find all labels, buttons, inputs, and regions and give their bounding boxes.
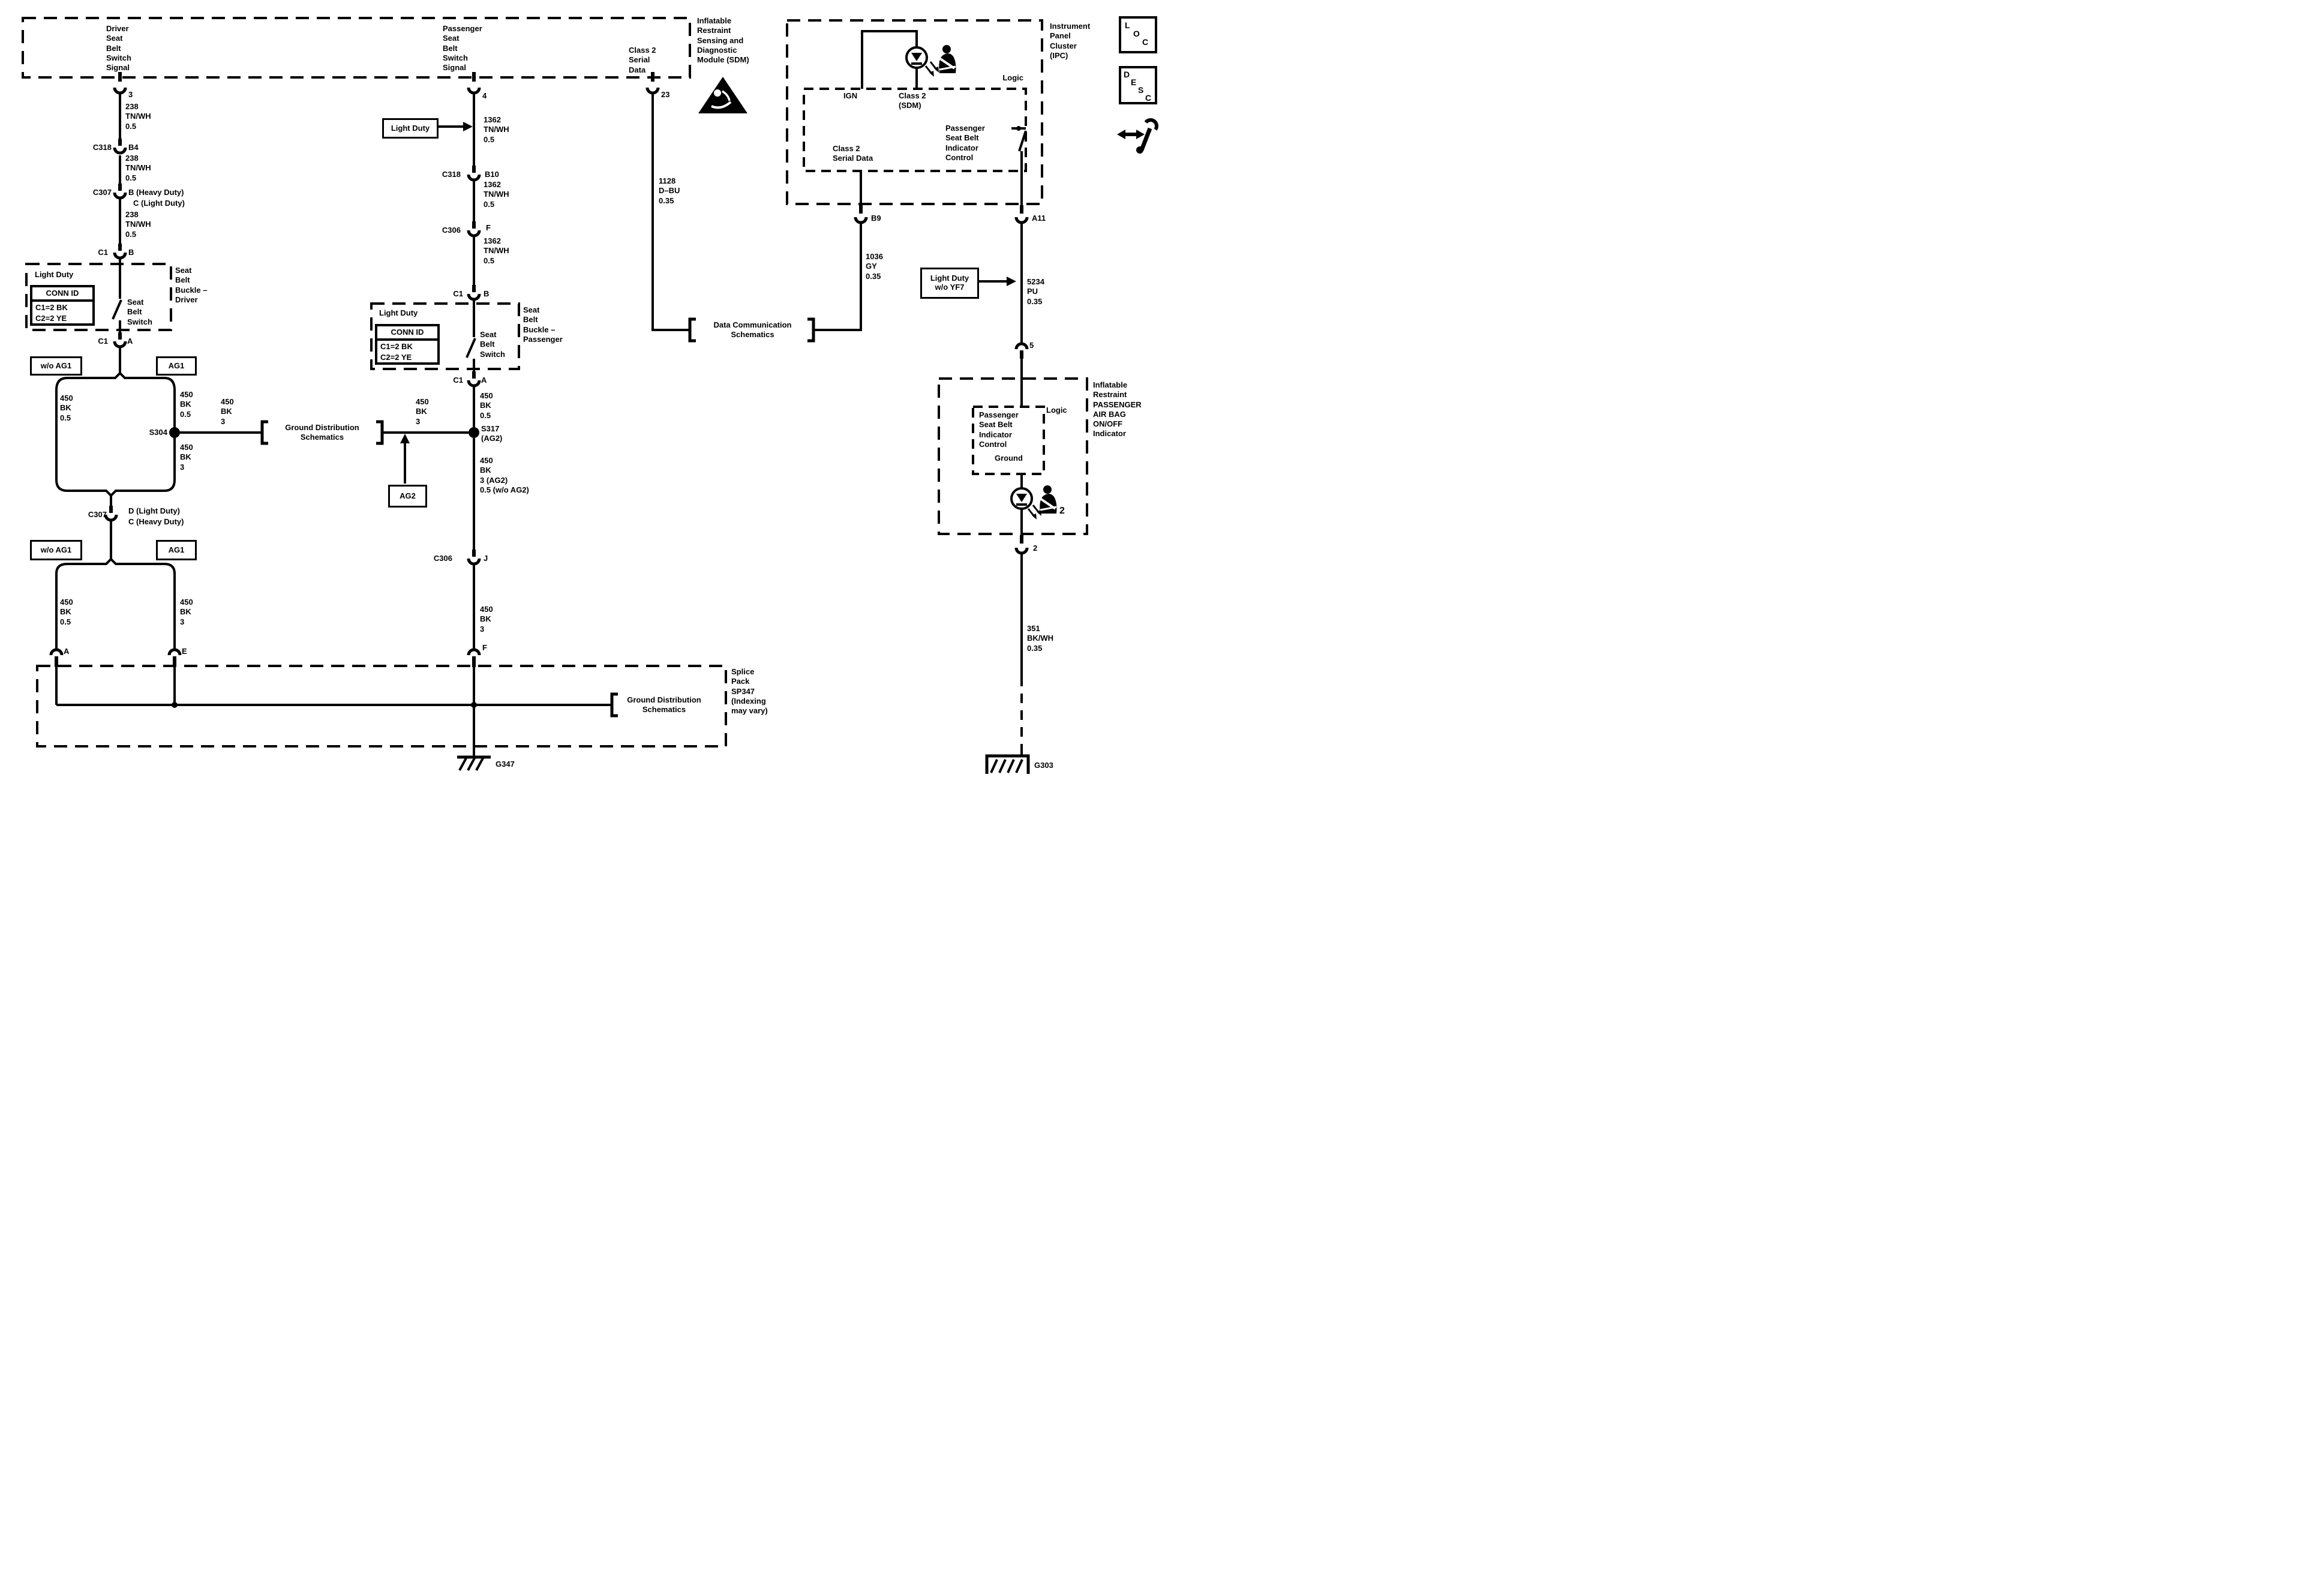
connector-stubs (55, 72, 1023, 667)
connector-c318-pin: B4 (128, 143, 139, 152)
ground-icon-g303 (987, 756, 1028, 774)
wire-label-1128: 1128 D–BU 0.35 (659, 176, 680, 206)
ground-distribution-ref: Ground Distribution Schematics (619, 695, 709, 715)
passenger-switch-blade (467, 338, 475, 358)
connector-c1-pin-b: B (128, 248, 134, 257)
wire-label-351: 351 BK/WH 0.35 (1027, 624, 1053, 653)
ipc-switch-symbol (1011, 128, 1026, 151)
driver-buckle-label: Seat Belt Buckle – Driver (175, 266, 207, 305)
desc-letter: E (1131, 78, 1136, 86)
connector-c1-label: C1 (84, 337, 108, 346)
sdm-pin-4: 4 (482, 91, 487, 101)
indicator-label: Inflatable Restraint PASSENGER AIR BAG O… (1093, 380, 1142, 439)
connector-c1-pin-b: B (484, 289, 489, 299)
ipc-control-label: Passenger Seat Belt Indicator Control (945, 124, 985, 163)
conn-id-table-passenger: CONN ID C1=2 BK C2=2 YE (375, 324, 440, 365)
diagram-linework (0, 0, 1162, 786)
wire-label-1362-1: 1362 TN/WH 0.5 (484, 115, 509, 145)
driver-merge-1 (56, 480, 175, 496)
desc-letter: D (1124, 70, 1130, 79)
connector-c307-pin-c: C (Light Duty) (133, 199, 185, 208)
seat-belt-icon (939, 45, 956, 73)
connector-c1-pin-a: A (481, 376, 487, 385)
driver-branches-2 (56, 574, 175, 650)
passenger-signal-label: Passenger Seat Belt Switch Signal (443, 24, 482, 73)
desc-icon: D E S C (1119, 66, 1157, 104)
wire-label-1362-3: 1362 TN/WH 0.5 (484, 236, 509, 266)
desc-letter: C (1145, 94, 1151, 102)
loc-letter: C (1142, 38, 1148, 46)
data-communication-ref: Data Communication Schematics (698, 320, 807, 340)
ground-ref-g303: G303 (1034, 761, 1053, 770)
connector-c1-label: C1 (439, 289, 463, 299)
ipc-led-loop (862, 31, 917, 89)
ag1-tag: AG1 (156, 356, 197, 376)
ipc-label: Instrument Panel Cluster (IPC) (1050, 22, 1090, 61)
driver-split-2 (56, 559, 175, 574)
splice-pack-label: Splice Pack SP347 (Indexing may vary) (731, 667, 768, 716)
wire-label-1362-2: 1362 TN/WH 0.5 (484, 180, 509, 209)
sdm-pin-23: 23 (661, 90, 669, 100)
reference-brackets (262, 319, 813, 716)
conn-id-row-1: C1=2 BK (32, 302, 92, 313)
desc-letter: S (1138, 86, 1143, 94)
light-duty-yf7-tag: Light Duty w/o YF7 (920, 268, 979, 299)
seat-belt-icon (1040, 485, 1056, 514)
driver-switch-label: Seat Belt Switch (127, 298, 152, 327)
ipc-ign-label: IGN (843, 91, 857, 101)
airbag-warning-icon (698, 77, 747, 113)
ipc-pin-a11: A11 (1032, 214, 1046, 223)
wire-label-450-3: 450 BK 3 (221, 397, 234, 427)
loc-letter: L (1125, 21, 1130, 29)
ground-icon-g347 (457, 757, 491, 770)
conn-id-row-1: C1=2 BK (377, 341, 437, 352)
ipc-pin-b9: B9 (871, 214, 881, 223)
wire-label-238-2: 238 TN/WH 0.5 (125, 154, 151, 183)
wire-label-238-1: 238 TN/WH 0.5 (125, 102, 151, 131)
indicator-logic-label: Logic (1046, 406, 1067, 415)
connector-c306-2-label: C306 (419, 554, 452, 563)
splice-internal-wires (56, 667, 612, 757)
class2-signal-label: Class 2 Serial Data (629, 46, 656, 75)
conn-id-table-driver: CONN ID C1=2 BK C2=2 YE (30, 285, 95, 326)
s304-dot (169, 427, 180, 438)
conn-id-row-2: C2=2 YE (32, 313, 92, 323)
indicator-control-label: Passenger Seat Belt Indicator Control (979, 410, 1019, 449)
wire-label-450-05: 450 BK 0.5 (180, 390, 193, 419)
ground-ref-g347: G347 (496, 760, 515, 769)
ipc-logic-label: Logic (984, 73, 1023, 83)
connector-c1-label: C1 (84, 248, 108, 257)
belt-icon-number: 2 (1059, 505, 1065, 517)
connector-c306-pin-f: F (486, 223, 491, 233)
wiring-diagram: Driver Seat Belt Switch Signal Passenger… (0, 0, 1162, 786)
led-icon (1011, 488, 1041, 520)
splice-pin-a: A (64, 647, 69, 656)
connector-c318-label: C318 (427, 170, 461, 179)
wire-label-1036: 1036 GY 0.35 (866, 252, 883, 281)
connector-c1-label: C1 (439, 376, 463, 385)
wire-label-450-05: 450 BK 0.5 (60, 394, 73, 423)
wire-label-238-3: 238 TN/WH 0.5 (125, 210, 151, 239)
conn-id-header: CONN ID (377, 326, 437, 341)
wrench-icon (1117, 120, 1157, 154)
ground-distribution-ref: Ground Distribution Schematics (268, 423, 376, 443)
connector-c307-pin-b: B (Heavy Duty) (128, 188, 184, 197)
conn-id-row-2: C2=2 YE (377, 352, 437, 362)
indicator-ground-label: Ground (995, 454, 1023, 463)
light-duty-tag: Light Duty (382, 118, 439, 139)
wire-label-450-3: 450 BK 3 (180, 598, 193, 627)
connector-pin-5: 5 (1029, 341, 1034, 350)
connector-c307-2-label: C307 (72, 510, 107, 520)
connector-c306-label: C306 (427, 226, 461, 235)
conn-id-header: CONN ID (32, 287, 92, 302)
ag2-tag: AG2 (388, 485, 427, 508)
splice-pin-e: E (182, 647, 187, 656)
wire-label-450-3: 450 BK 3 (180, 443, 193, 472)
wire-label-5234: 5234 PU 0.35 (1027, 277, 1044, 307)
connector-c318-label: C318 (76, 143, 112, 152)
wo-ag1-tag: w/o AG1 (30, 356, 82, 376)
connector-pin-2: 2 (1033, 544, 1037, 553)
sdm-module-label: Inflatable Restraint Sensing and Diagnos… (697, 16, 749, 65)
ipc-class2-sdm-label: Class 2 (SDM) (899, 91, 926, 111)
connector-c307-label: C307 (76, 188, 112, 197)
driver-switch-blade (113, 300, 121, 319)
connector-c307-2-pin-d: D (Light Duty) (128, 506, 180, 516)
connector-c1-pin-a: A (127, 337, 133, 346)
connector-c318-pin-b10: B10 (485, 170, 499, 179)
splice-s317-label: S317 (AG2) (481, 424, 502, 444)
driver-buckle-light-duty: Light Duty (35, 270, 73, 280)
s317-dot (469, 427, 479, 438)
connector-c307-2-pin-c: C (Heavy Duty) (128, 517, 184, 527)
sdm-pin-3: 3 (128, 90, 133, 100)
driver-split-1 (56, 373, 175, 390)
connector-c306-2-pin-j: J (484, 554, 488, 563)
passenger-buckle-label: Seat Belt Buckle – Passenger (523, 305, 563, 344)
loc-icon: L O C (1119, 16, 1157, 53)
splice-pin-f: F (482, 643, 487, 653)
loc-letter: O (1133, 29, 1140, 38)
connector-arcs (51, 88, 1027, 655)
wires (56, 31, 1026, 757)
splice-s304-label: S304 (138, 428, 167, 437)
driver-signal-label: Driver Seat Belt Switch Signal (106, 24, 131, 73)
ag1-tag: AG1 (156, 540, 197, 560)
wire-label-450-3: 450 BK 3 (416, 397, 429, 427)
wire-label-450-05: 450 BK 0.5 (60, 598, 73, 627)
dashed-boxes (23, 18, 1087, 746)
passenger-buckle-light-duty: Light Duty (379, 308, 418, 318)
class2-wire (653, 93, 861, 330)
wire-label-450-mixed: 450 BK 3 (AG2) 0.5 (w/o AG2) (480, 456, 529, 495)
wo-ag1-tag: w/o AG1 (30, 540, 82, 560)
wire-label-450-3: 450 BK 3 (480, 605, 493, 634)
ipc-class2-serial-label: Class 2 Serial Data (833, 144, 873, 164)
led-icon (906, 47, 939, 77)
passenger-switch-label: Seat Belt Switch (480, 330, 505, 359)
wire-label-450-05: 450 BK 0.5 (480, 391, 493, 421)
switch-contact-dot (1016, 126, 1021, 131)
